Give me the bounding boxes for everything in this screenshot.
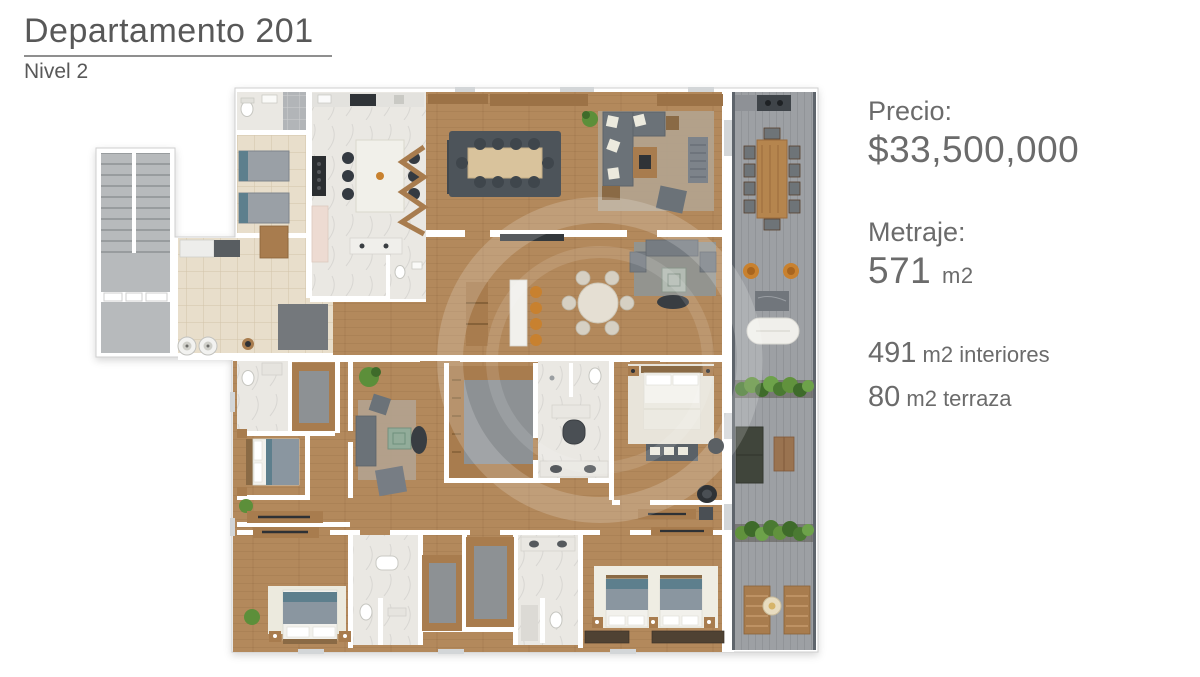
lounge: [582, 111, 714, 214]
pantry-cabinet: [312, 206, 328, 262]
glass-table: [388, 428, 411, 449]
bathtub: [563, 420, 585, 444]
media-console: [500, 234, 564, 241]
entry-mat: [278, 304, 328, 350]
plant: [244, 609, 260, 625]
terrace: [732, 92, 816, 650]
sink: [262, 95, 277, 103]
plant: [239, 499, 253, 513]
wardrobe: [585, 631, 629, 643]
walk-in-closet-b: [466, 537, 514, 627]
bathroom-4: [353, 535, 418, 645]
stair-lobby-floor: [101, 302, 170, 353]
wardrobe: [652, 631, 724, 643]
toilet: [241, 102, 253, 117]
laundry-cabinet: [214, 240, 240, 257]
master-bathroom: [538, 361, 609, 478]
sofa: [646, 240, 698, 256]
pouf: [375, 466, 407, 496]
bedroom-5: [585, 566, 724, 643]
den-sofa: [356, 416, 376, 466]
service-table: [260, 226, 288, 258]
walk-in-closet-a: [422, 555, 462, 631]
dining-table: [468, 148, 542, 178]
floor-plan: [0, 0, 1200, 677]
formal-dining: [449, 131, 561, 197]
breakfast-bar: [510, 280, 527, 346]
range: [350, 94, 376, 106]
wall-cabinets: [490, 94, 588, 106]
walk-in-closet-1: [449, 366, 533, 478]
closet-3: [292, 363, 335, 431]
ribbed-bench: [688, 137, 708, 183]
bar-counter: [350, 238, 402, 254]
laundry-counter: [180, 240, 214, 257]
bathroom-5: [518, 535, 578, 645]
glass-table: [662, 268, 686, 292]
twin-bed: [606, 575, 648, 627]
bathroom-3: [237, 361, 288, 431]
twin-bed: [660, 575, 702, 627]
bar-shelves: [466, 282, 488, 346]
powder-room: [386, 255, 426, 299]
stone-table: [755, 291, 789, 311]
